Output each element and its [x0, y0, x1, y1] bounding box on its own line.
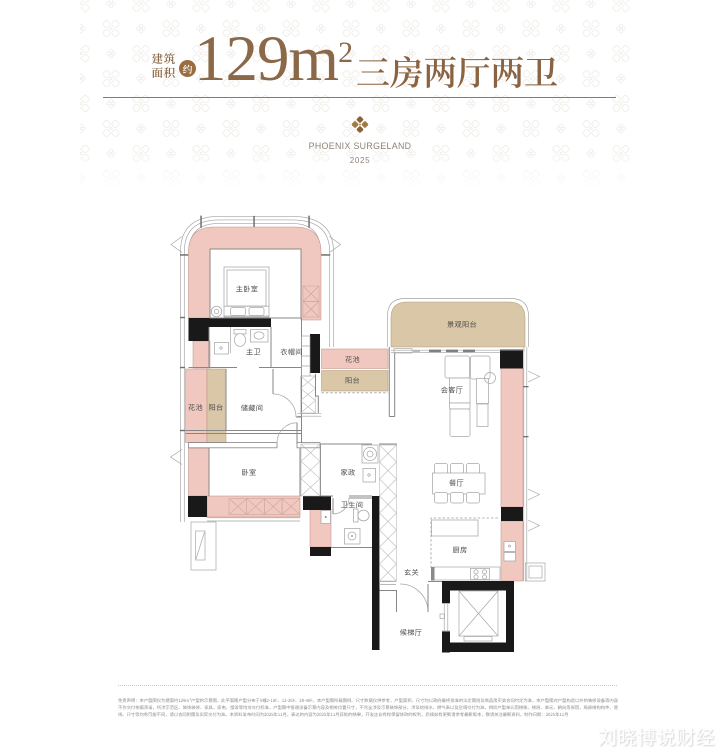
svg-text:卫生间: 卫生间	[341, 501, 363, 511]
svg-text:主卫: 主卫	[246, 348, 261, 358]
svg-text:餐厅: 餐厅	[449, 479, 464, 489]
svg-text:花池: 花池	[188, 403, 203, 413]
svg-text:储藏间: 储藏间	[241, 404, 263, 414]
svg-text:家政: 家政	[341, 468, 356, 478]
svg-text:会客厅: 会客厅	[441, 386, 463, 396]
svg-text:主卧室: 主卧室	[236, 285, 258, 295]
svg-text:衣帽间: 衣帽间	[280, 348, 302, 358]
svg-text:厨房: 厨房	[453, 546, 468, 556]
svg-text:卧室: 卧室	[242, 468, 257, 478]
svg-text:景观阳台: 景观阳台	[447, 320, 477, 330]
svg-text:阳台: 阳台	[345, 376, 360, 386]
svg-text:花池: 花池	[345, 355, 360, 365]
svg-text:玄关: 玄关	[404, 568, 419, 578]
svg-text:候梯厅: 候梯厅	[400, 628, 422, 638]
svg-text:阳台: 阳台	[209, 403, 224, 413]
